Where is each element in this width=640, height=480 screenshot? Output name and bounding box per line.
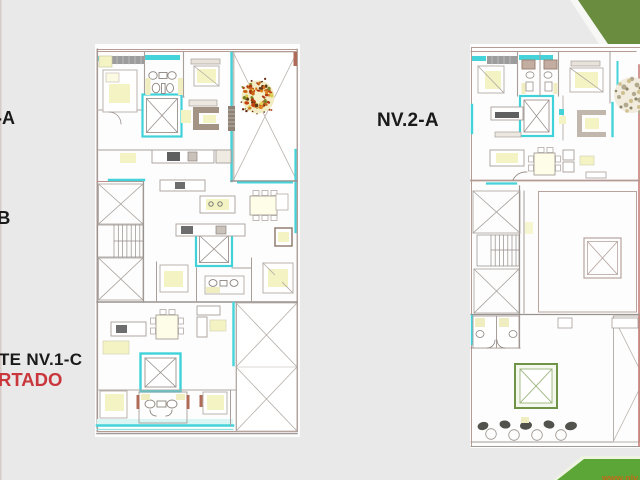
svg-text:www.niv: www.niv	[601, 473, 638, 480]
